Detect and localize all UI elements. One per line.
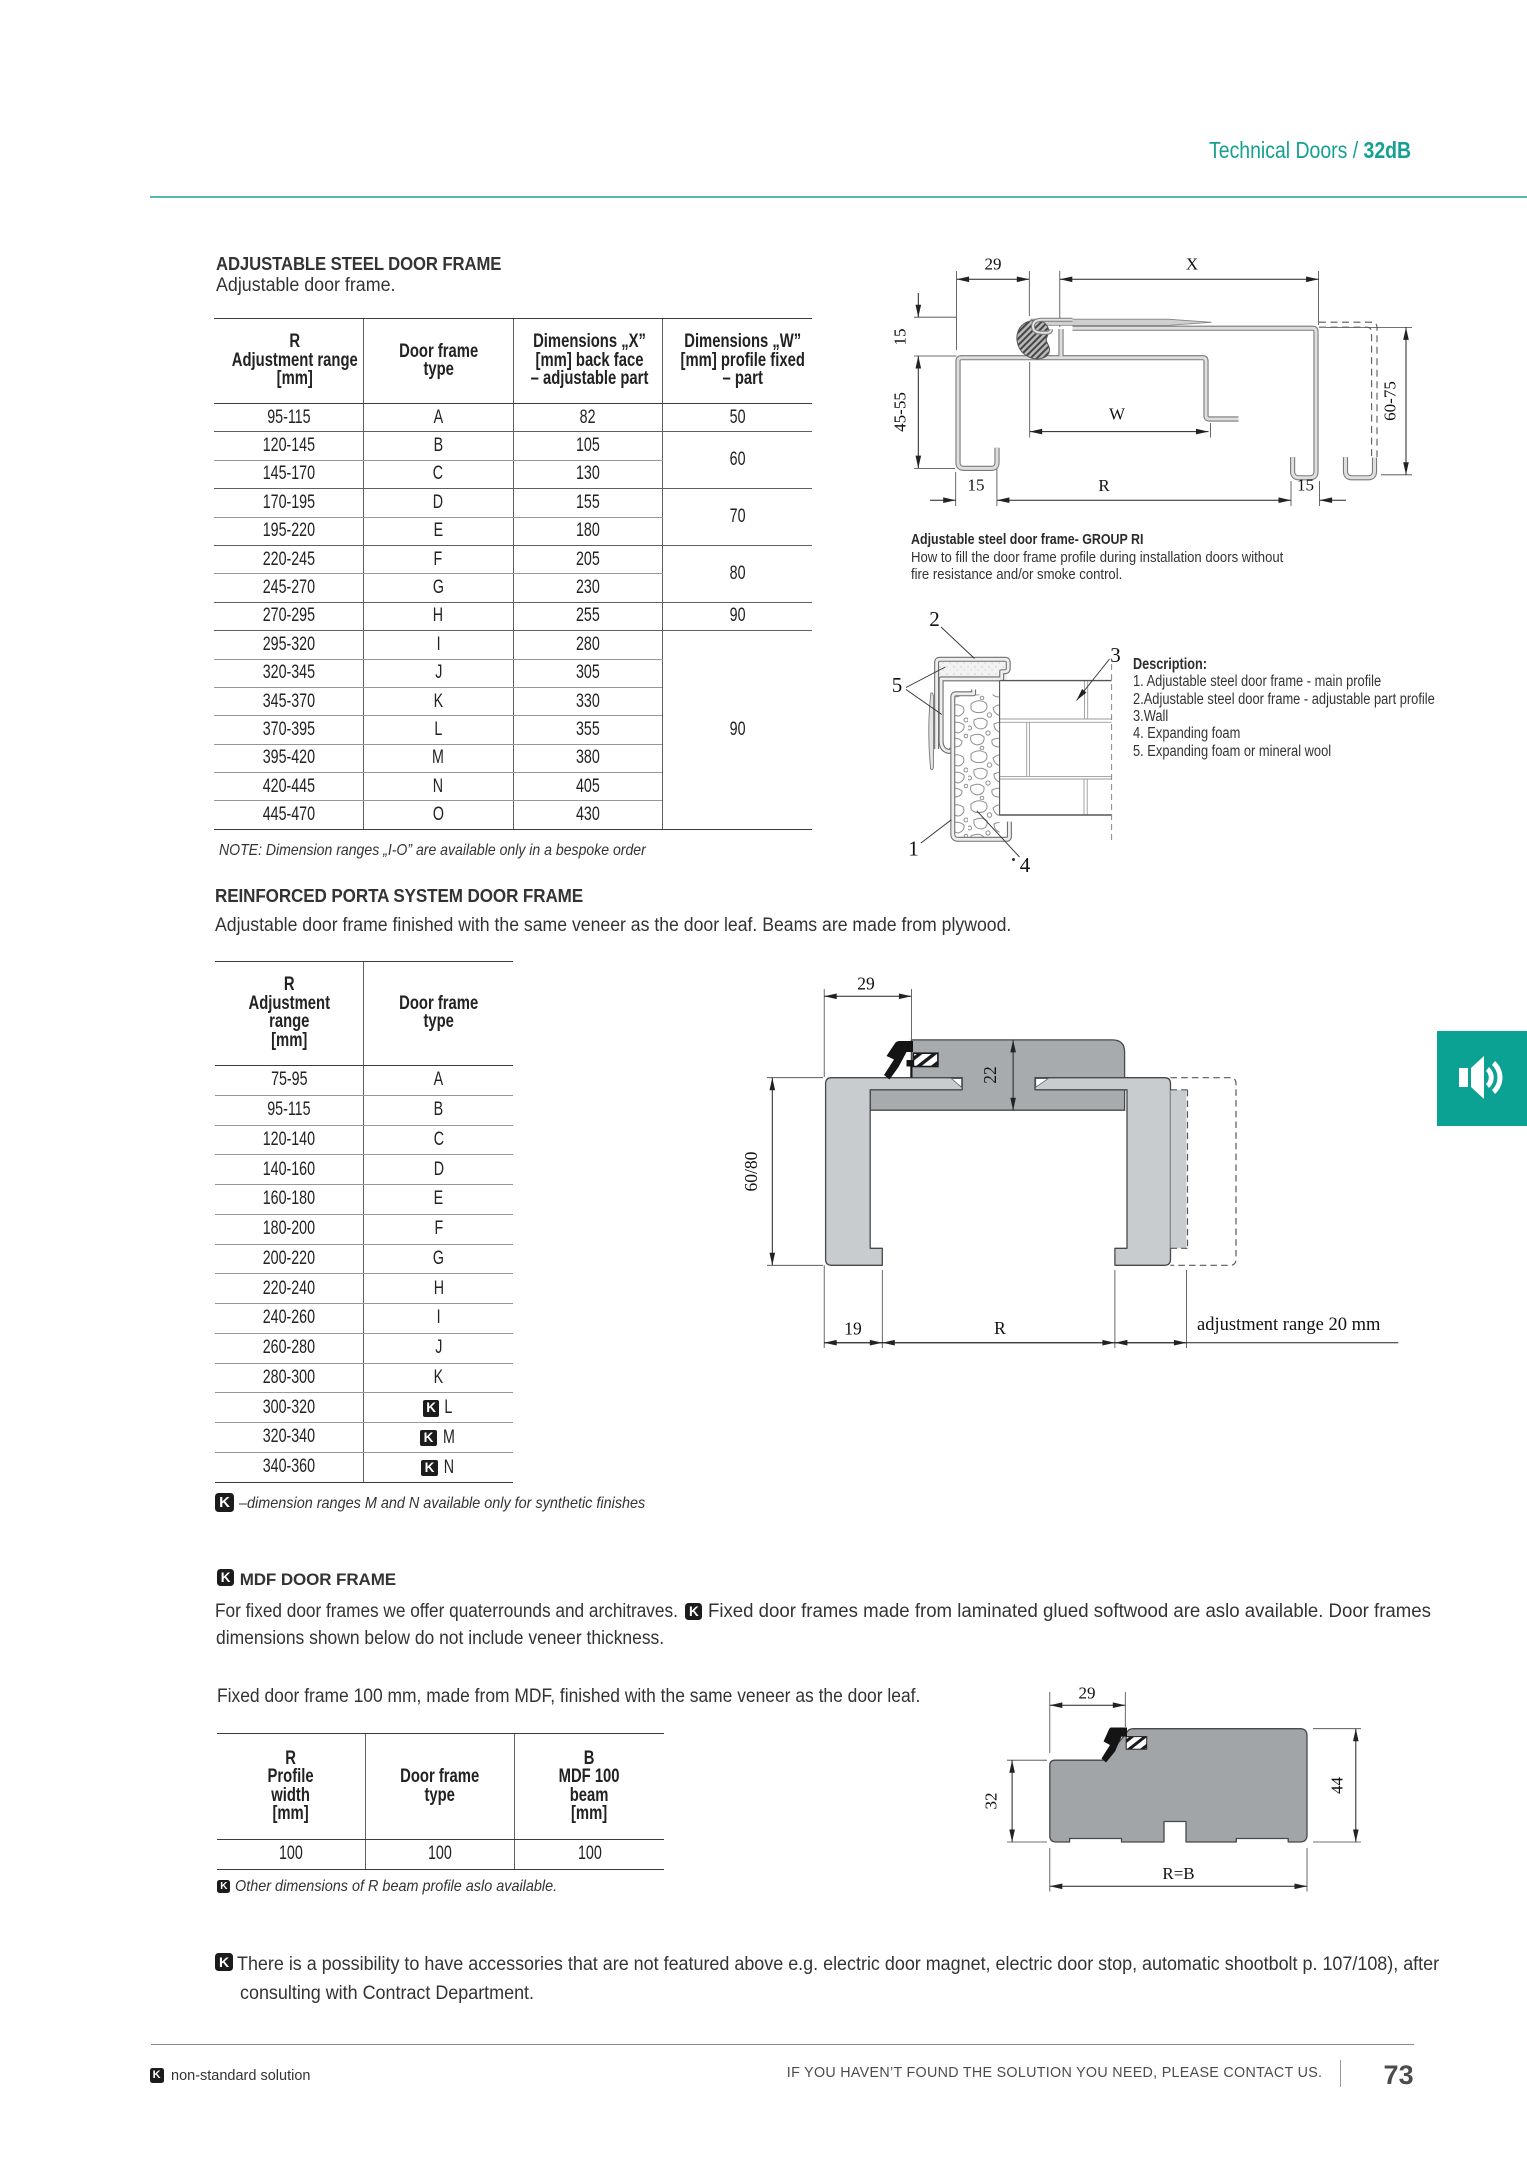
svg-text:2: 2	[929, 607, 940, 631]
svg-text:15: 15	[1297, 476, 1314, 495]
svg-text:15: 15	[891, 329, 910, 346]
svg-text:29: 29	[1079, 1684, 1096, 1703]
svg-text:45-55: 45-55	[891, 392, 910, 432]
svg-text:29: 29	[985, 255, 1002, 274]
svg-text:R: R	[1098, 476, 1110, 495]
svg-text:60/80: 60/80	[741, 1151, 761, 1191]
svg-text:R=B: R=B	[1162, 1864, 1194, 1883]
svg-text:3: 3	[1110, 643, 1121, 667]
svg-text:60-75: 60-75	[1381, 381, 1400, 421]
svg-text:4: 4	[1020, 853, 1031, 877]
svg-text:29: 29	[857, 974, 875, 994]
svg-text:19: 19	[844, 1319, 862, 1339]
svg-text:R: R	[994, 1318, 1006, 1338]
svg-text:22: 22	[980, 1066, 1000, 1084]
svg-text:15: 15	[968, 476, 985, 495]
svg-text:1: 1	[908, 837, 919, 861]
svg-text:44: 44	[1328, 1777, 1347, 1795]
svg-text:X: X	[1186, 255, 1198, 274]
svg-text:W: W	[1109, 405, 1126, 424]
svg-text:adjustment range 20 mm: adjustment range 20 mm	[1197, 1315, 1381, 1335]
svg-text:32: 32	[982, 1793, 1001, 1810]
svg-text:5: 5	[892, 673, 903, 697]
